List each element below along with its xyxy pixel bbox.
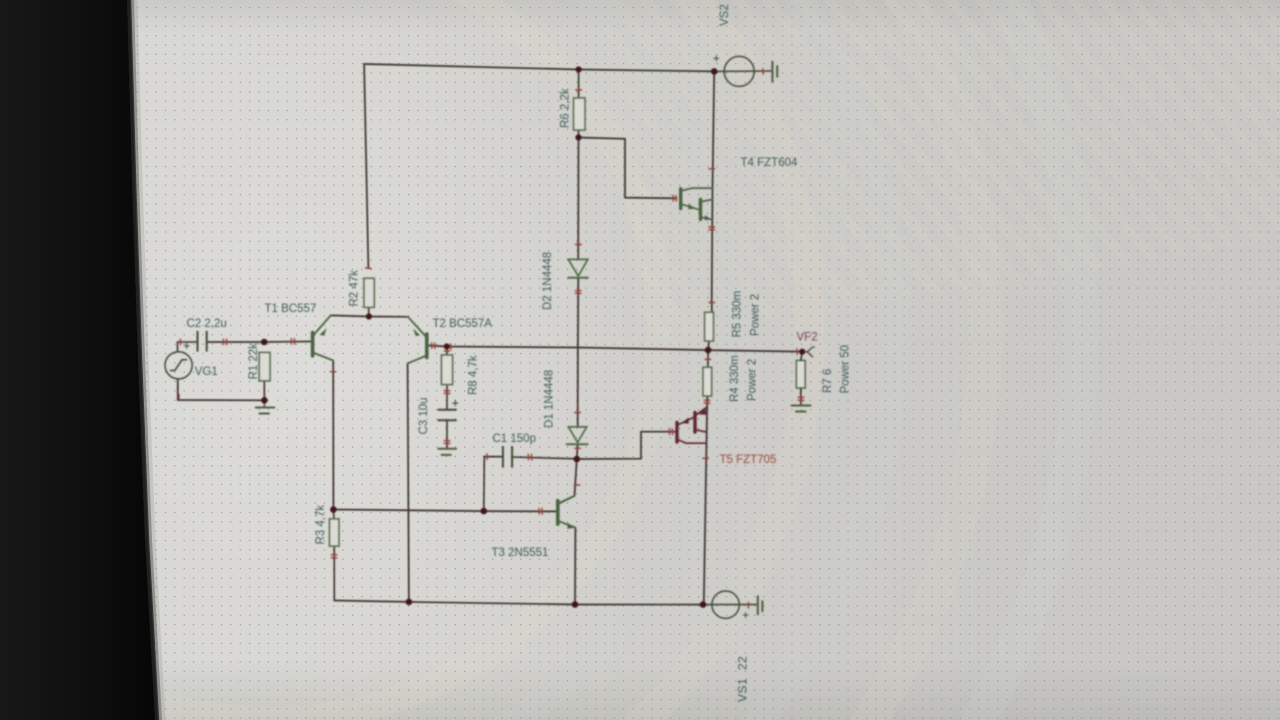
svg-text:R8 4,7k: R8 4,7k bbox=[468, 355, 480, 395]
svg-text:R3 4,7k: R3 4,7k bbox=[315, 505, 327, 545]
svg-text:R4 330m: R4 330m bbox=[729, 355, 741, 402]
svg-text:R5 330m: R5 330m bbox=[732, 291, 744, 338]
svg-text:VF2: VF2 bbox=[797, 332, 818, 344]
svg-text:Power 2: Power 2 bbox=[747, 359, 759, 401]
svg-text:T1 BC557: T1 BC557 bbox=[265, 303, 317, 315]
svg-text:Power 50: Power 50 bbox=[840, 345, 852, 394]
svg-text:D2 1N4448: D2 1N4448 bbox=[542, 252, 554, 310]
svg-text:C2 2,2u: C2 2,2u bbox=[187, 318, 227, 330]
svg-text:T2 BC557A: T2 BC557A bbox=[433, 318, 493, 330]
svg-text:D1 1N4448: D1 1N4448 bbox=[544, 370, 556, 428]
svg-text:C3 10u: C3 10u bbox=[418, 397, 430, 434]
svg-text:C1 150p: C1 150p bbox=[493, 433, 536, 445]
svg-text:T5 FZT705: T5 FZT705 bbox=[720, 454, 777, 466]
svg-text:R7 6: R7 6 bbox=[822, 369, 834, 393]
svg-text:VG1: VG1 bbox=[195, 366, 218, 378]
svg-text:T4 FZT604: T4 FZT604 bbox=[741, 157, 798, 169]
svg-text:R6 2,2k: R6 2,2k bbox=[560, 88, 572, 128]
svg-text:T3 2N5551: T3 2N5551 bbox=[492, 547, 549, 559]
svg-text:VS1 22: VS1 22 bbox=[736, 656, 750, 702]
svg-text:R2 47k: R2 47k bbox=[349, 270, 361, 307]
svg-text:Power 2: Power 2 bbox=[750, 294, 762, 336]
svg-text:VS2: VS2 bbox=[719, 4, 731, 26]
svg-text:R1 22k: R1 22k bbox=[248, 343, 260, 380]
